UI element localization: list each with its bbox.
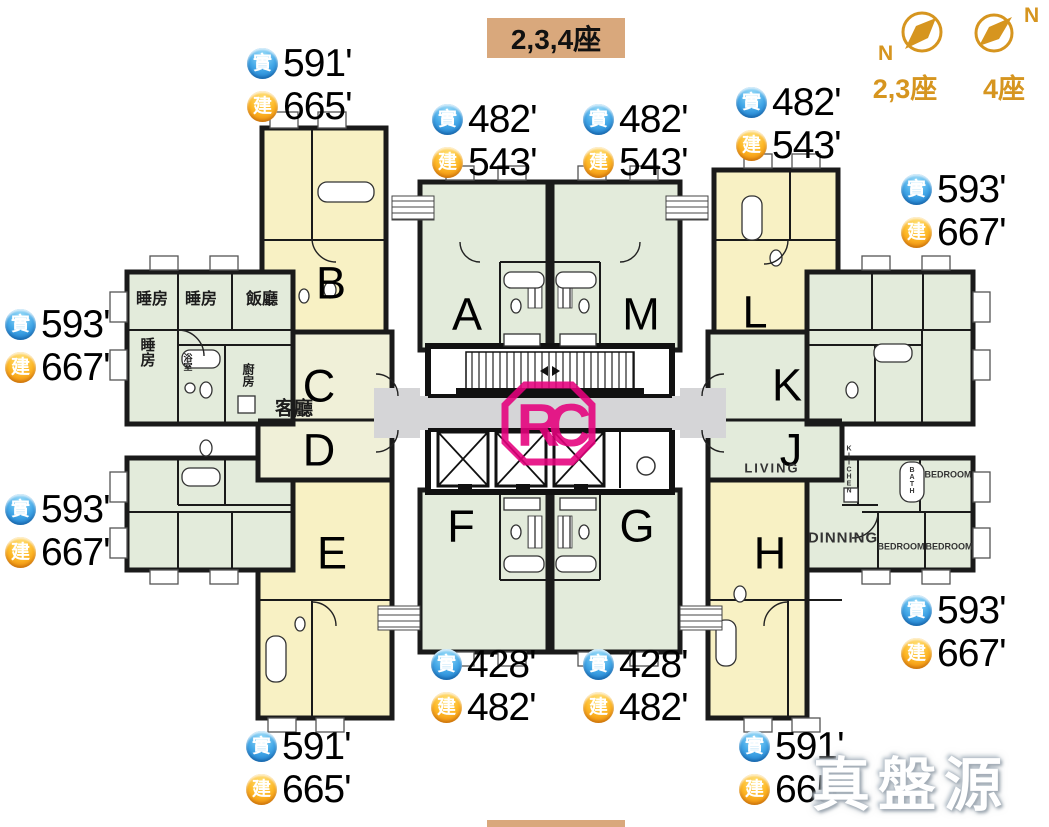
gross-badge-icon: 建	[247, 91, 278, 122]
area-label-a: 實482' 建543'	[432, 100, 537, 182]
compass-north-label: N	[1024, 4, 1039, 27]
gross-badge-icon: 建	[736, 130, 767, 161]
gross-badge-icon: 建	[901, 217, 932, 248]
unit-letter-m: M	[622, 292, 660, 337]
rc-logo: RC	[505, 385, 592, 462]
room-label-bedroom-1: 睡房	[136, 292, 168, 308]
unit-letter-l: L	[742, 290, 767, 335]
unit-letter-f: F	[447, 504, 475, 549]
area-label-l: 實482' 建543'	[736, 83, 841, 165]
saleable-badge-icon: 實	[901, 595, 932, 626]
gross-badge-icon: 建	[431, 692, 462, 723]
area-label-right-upper: 實593' 建667'	[901, 170, 1006, 252]
rc-logo-text: RC	[517, 392, 590, 459]
area-label-left-upper: 實593' 建667'	[5, 305, 110, 387]
gross-value: 665'	[282, 770, 351, 809]
gross-badge-icon: 建	[583, 147, 614, 178]
saleable-value: 593'	[41, 305, 110, 344]
stove	[238, 396, 255, 413]
room-label-dining-en: DINNING	[808, 531, 878, 546]
gross-value: 665'	[283, 87, 352, 126]
room-label-bath-en: BATH	[909, 467, 916, 495]
saleable-value: 591'	[283, 44, 352, 83]
compass-block-23-label: 2,3座	[873, 73, 938, 104]
saleable-badge-icon: 實	[431, 649, 462, 680]
saleable-badge-icon: 實	[5, 494, 36, 525]
saleable-value: 482'	[619, 100, 688, 139]
saleable-badge-icon: 實	[247, 48, 278, 79]
gross-badge-icon: 建	[901, 638, 932, 669]
saleable-badge-icon: 實	[901, 174, 932, 205]
area-label-right-lower: 實593' 建667'	[901, 591, 1006, 673]
compass-needle	[979, 17, 1012, 46]
saleable-badge-icon: 實	[583, 104, 614, 135]
gross-badge-icon: 建	[5, 537, 36, 568]
room-label-bedroom-en-3: BEDROOM	[926, 543, 973, 552]
room-label-kitchen-en: KITCHEN	[846, 446, 853, 495]
room-label-bedroom-en-1: BEDROOM	[925, 471, 972, 480]
gross-value: 667'	[937, 213, 1006, 252]
gross-value: 667'	[41, 533, 110, 572]
area-label-g: 實428' 建482'	[583, 645, 688, 727]
room-label-bedroom-en-2: BEDROOM	[878, 543, 925, 552]
unit-letter-g: G	[619, 504, 654, 549]
saleable-value: 428'	[467, 645, 536, 684]
unit-letter-a: A	[452, 292, 482, 337]
saleable-badge-icon: 實	[246, 731, 277, 762]
room-label-kitchen-cn: 廚房	[242, 363, 254, 387]
area-label-e: 實591' 建665'	[246, 727, 351, 809]
saleable-value: 593'	[41, 490, 110, 529]
gross-value: 667'	[41, 348, 110, 387]
gross-value: 482'	[467, 688, 536, 727]
area-label-b: 實591' 建665'	[247, 44, 352, 126]
bottom-banner-strip	[487, 820, 625, 827]
unit-letter-k: K	[772, 363, 802, 408]
unit-letter-e: E	[317, 531, 347, 576]
gross-badge-icon: 建	[583, 692, 614, 723]
saleable-value: 593'	[937, 170, 1006, 209]
floorplan-page: N 2,3座 N 4座 RC 2,3,4座 實591' 建665' 實482' …	[0, 0, 1049, 827]
saleable-value: 482'	[772, 83, 841, 122]
saleable-value: 593'	[937, 591, 1006, 630]
gross-value: 543'	[619, 143, 688, 182]
compass-north-label: N	[878, 42, 893, 65]
saleable-badge-icon: 實	[5, 309, 36, 340]
room-label-bedroom-2: 睡房	[185, 292, 217, 308]
unit-letter-b: B	[316, 261, 346, 306]
saleable-value: 482'	[468, 100, 537, 139]
watermark: 真盤源	[812, 738, 1010, 822]
compass-needle	[905, 18, 936, 49]
compass-block-23: N 2,3座	[873, 13, 941, 104]
gross-badge-icon: 建	[246, 774, 277, 805]
saleable-value: 428'	[619, 645, 688, 684]
room-label-living-cn: 客廳	[275, 400, 313, 419]
room-label-living-en: LIVING	[744, 462, 799, 475]
room-label-bedroom-3: 睡房	[140, 337, 155, 367]
area-label-left-lower: 實593' 建667'	[5, 490, 110, 572]
gross-badge-icon: 建	[432, 147, 463, 178]
saleable-value: 591'	[282, 727, 351, 766]
gross-value: 482'	[619, 688, 688, 727]
area-label-m: 實482' 建543'	[583, 100, 688, 182]
room-label-bath-cn: 浴室	[183, 353, 192, 371]
compass-block-4: N 4座	[976, 4, 1039, 104]
gross-badge-icon: 建	[5, 352, 36, 383]
gross-value: 543'	[468, 143, 537, 182]
gross-value: 667'	[937, 634, 1006, 673]
saleable-badge-icon: 實	[583, 649, 614, 680]
saleable-badge-icon: 實	[739, 731, 770, 762]
gross-badge-icon: 建	[739, 774, 770, 805]
unit-letter-h: H	[754, 531, 787, 576]
unit-letter-d: D	[303, 428, 336, 473]
gross-value: 543'	[772, 126, 841, 165]
saleable-badge-icon: 實	[432, 104, 463, 135]
compass-block-4-label: 4座	[983, 73, 1025, 104]
area-label-f: 實428' 建482'	[431, 645, 536, 727]
room-label-dining-cn: 飯廳	[246, 292, 278, 308]
left-wing-units	[127, 128, 392, 718]
title-banner: 2,3,4座	[487, 18, 625, 58]
saleable-badge-icon: 實	[736, 87, 767, 118]
